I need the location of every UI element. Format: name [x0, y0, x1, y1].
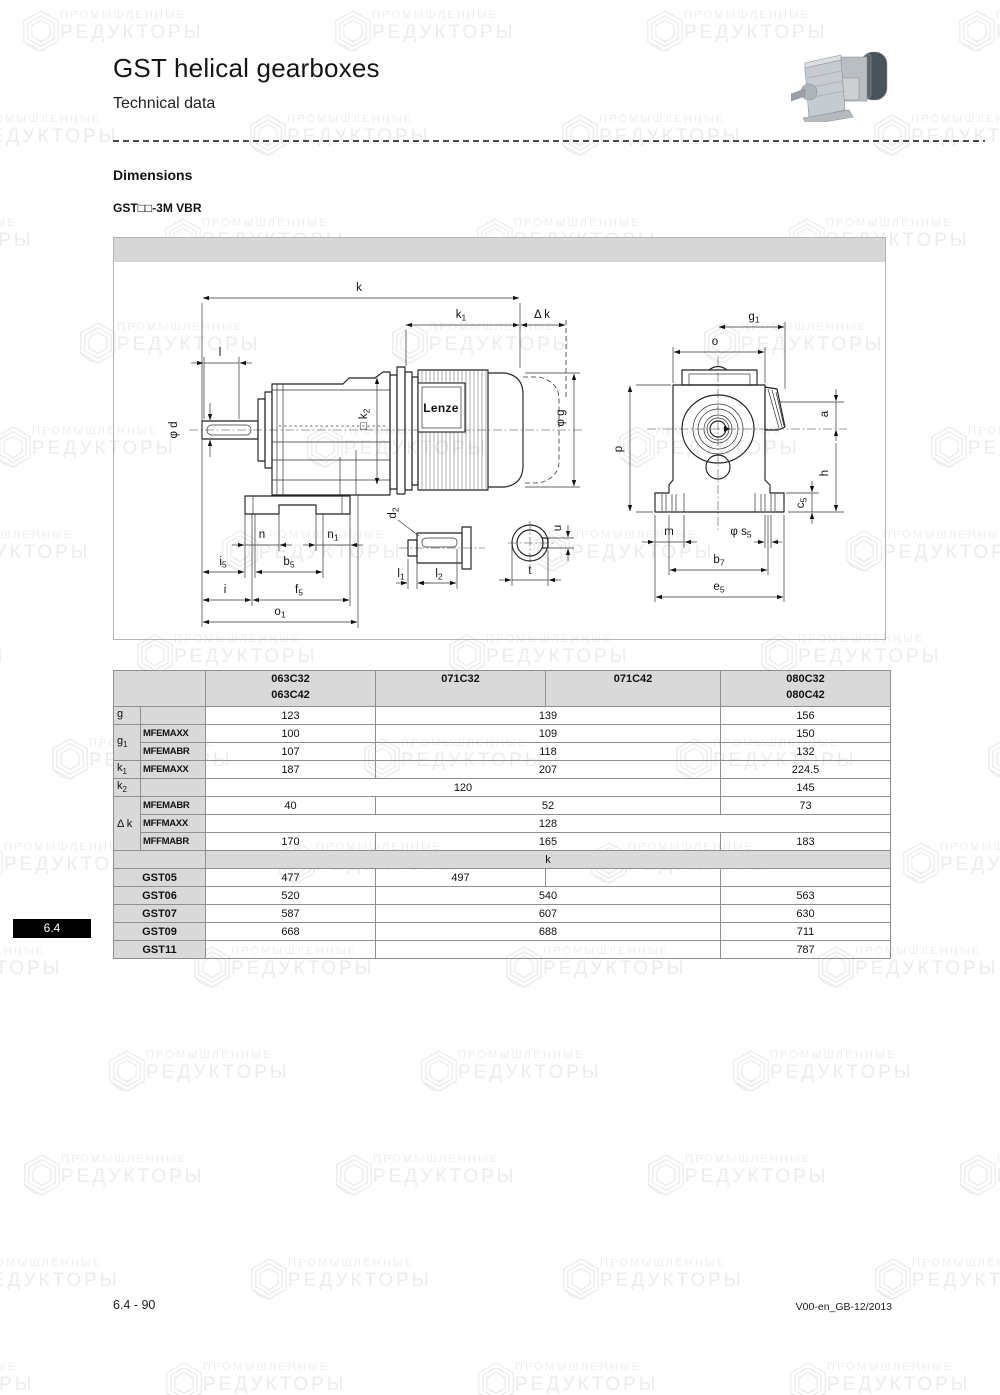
table-cell: 170: [206, 833, 376, 851]
table-cell: 587: [206, 905, 376, 923]
svg-text:k1: k1: [456, 309, 467, 323]
table-cell: 132: [721, 743, 891, 761]
row-label-gst06: GST06: [114, 887, 206, 905]
dimensions-table: 063C32 063C42 071C32 071C42 080C32 080C4…: [113, 670, 891, 959]
svg-text:p: p: [613, 446, 625, 452]
svg-text:n: n: [259, 529, 265, 541]
svg-text:l: l: [219, 347, 222, 359]
table-cell: 118: [376, 743, 721, 761]
foot-bolt-holes: [662, 494, 775, 511]
table-cell: 120: [206, 779, 721, 797]
page-subtitle: Technical data: [113, 95, 215, 113]
k-section-header: k: [206, 851, 891, 869]
table-cell: 520: [206, 887, 376, 905]
row-label-g1: g1: [114, 725, 141, 761]
table-cell: 207: [376, 761, 721, 779]
table-cell: [546, 869, 721, 887]
table-cell: 150: [721, 725, 891, 743]
sub-label: MFEMAXX: [141, 761, 206, 779]
front-view: [647, 357, 847, 530]
row-gst09: GST09 668 688 711: [114, 923, 891, 941]
chapter-tab: 6.4: [13, 919, 91, 938]
svg-text:□ k2: □ k2: [358, 408, 372, 429]
row-k2: k2 120 145: [114, 779, 891, 797]
svg-text:l2: l2: [435, 568, 443, 582]
table-cell: 52: [376, 797, 721, 815]
svg-text:o1: o1: [274, 606, 285, 620]
row-dk-mffmabr: MFFMABR 170 165 183: [114, 833, 891, 851]
row-gst11: GST11 787: [114, 941, 891, 959]
row-label-k2: k2: [114, 779, 141, 797]
row-label-dk: Δ k: [114, 797, 141, 851]
footer-page-number: 6.4 - 90: [113, 1298, 155, 1312]
sub-label: MFEMABR: [141, 743, 206, 761]
table-cell: 156: [721, 707, 891, 725]
table-cell: 563: [721, 887, 891, 905]
table-cell: [141, 707, 206, 725]
table-cell: 540: [376, 887, 721, 905]
row-k1-mfemaxx: k1 MFEMAXX 187 207 224.5: [114, 761, 891, 779]
table-cell: [376, 941, 721, 959]
svg-text:c5: c5: [795, 497, 809, 508]
svg-text:k: k: [356, 282, 362, 294]
row-k-header: k: [114, 851, 891, 869]
table-cell: 183: [721, 833, 891, 851]
table-cell: 630: [721, 905, 891, 923]
row-g: g 123 139 156: [114, 707, 891, 725]
table-cell: 497: [376, 869, 546, 887]
row-label-gst07: GST07: [114, 905, 206, 923]
product-photo: [791, 44, 893, 122]
row-label-gst05: GST05: [114, 869, 206, 887]
table-cell: 128: [206, 815, 891, 833]
row-gst05: GST05 477 497: [114, 869, 891, 887]
front-view-dimensions: g1 o p a h c5: [613, 311, 844, 602]
page: { "page": { "title": "GST helical gearbo…: [0, 0, 1000, 1395]
svg-text:h: h: [819, 470, 831, 476]
section-heading: Dimensions: [113, 167, 192, 183]
row-g1-mfemaxx: g1 MFEMAXX 100 109 150: [114, 725, 891, 743]
side-view-dimensions: k k1 Δ k l φ d □ k2 φ g: [168, 282, 580, 628]
table-cell: [206, 941, 376, 959]
table-cell: 109: [376, 725, 721, 743]
col-header-071c42: 071C42: [546, 671, 721, 707]
svg-text:t: t: [528, 565, 532, 577]
svg-text:Δ k: Δ k: [534, 309, 550, 321]
svg-text:n1: n1: [327, 529, 338, 543]
table-corner-cell: [114, 671, 206, 707]
table-cell: 100: [206, 725, 376, 743]
row-g1-mfemabr: MFEMABR 107 118 132: [114, 743, 891, 761]
lenze-logo: Lenze: [423, 401, 459, 415]
table-cell: 139: [376, 707, 721, 725]
row-label-gst11: GST11: [114, 941, 206, 959]
table-cell: 123: [206, 707, 376, 725]
svg-text:i: i: [224, 584, 227, 596]
table-cell: 187: [206, 761, 376, 779]
table-cell: [141, 779, 206, 797]
row-gst06: GST06 520 540 563: [114, 887, 891, 905]
page-content: GST helical gearboxes Technical data Dim…: [0, 0, 1000, 1395]
row-label-gst09: GST09: [114, 923, 206, 941]
sub-label: MFFMABR: [141, 833, 206, 851]
table-cell: 688: [376, 923, 721, 941]
sub-label: MFEMAXX: [141, 725, 206, 743]
row-dk-mfemabr: Δ k MFEMABR 40 52 73: [114, 797, 891, 815]
footer-version: V00-en_GB-12/2013: [592, 1301, 892, 1313]
sub-label: MFEMABR: [141, 797, 206, 815]
table-cell: 668: [206, 923, 376, 941]
bushing-detail: d2 l1 l2: [387, 507, 485, 589]
row-dk-mffmaxx: MFFMAXX 128: [114, 815, 891, 833]
svg-text:d2: d2: [387, 507, 401, 518]
svg-text:φ g: φ g: [555, 409, 567, 426]
svg-text:o: o: [712, 336, 718, 348]
output-shaft: [791, 89, 805, 101]
shaft-section-detail: u t: [499, 521, 574, 586]
svg-text:φ d: φ d: [168, 421, 180, 438]
dashed-separator: [113, 140, 985, 142]
page-title: GST helical gearboxes: [113, 53, 380, 84]
svg-text:φ s5: φ s5: [730, 526, 751, 540]
table-cell: 107: [206, 743, 376, 761]
svg-text:f5: f5: [295, 584, 303, 598]
table-cell: [114, 851, 206, 869]
svg-text:i5: i5: [219, 556, 227, 570]
svg-text:e5: e5: [713, 581, 724, 595]
table-cell: 40: [206, 797, 376, 815]
svg-text:b7: b7: [713, 554, 724, 568]
table-cell: 711: [721, 923, 891, 941]
col-header-071c32: 071C32: [376, 671, 546, 707]
table-cell: 787: [721, 941, 891, 959]
row-label-g: g: [114, 707, 141, 725]
variant-label: GST□□-3M VBR: [113, 201, 202, 215]
row-label-k1: k1: [114, 761, 141, 779]
table-cell: 477: [206, 869, 376, 887]
sub-label: MFFMAXX: [141, 815, 206, 833]
side-view: Lenze: [189, 367, 583, 514]
svg-text:l1: l1: [397, 568, 405, 582]
table-header-row: 063C32 063C42 071C32 071C42 080C32 080C4…: [114, 671, 891, 707]
svg-text:u: u: [552, 525, 564, 531]
table-cell: 145: [721, 779, 891, 797]
table-cell: 224.5: [721, 761, 891, 779]
table-cell: [721, 869, 891, 887]
table-cell: 165: [376, 833, 721, 851]
col-header-063: 063C32 063C42: [206, 671, 376, 707]
col-header-080: 080C32 080C42: [721, 671, 891, 707]
dimension-drawing: Lenze k k1 Δ k l φ d □ k: [113, 237, 886, 640]
svg-text:a: a: [819, 410, 831, 417]
table-cell: 73: [721, 797, 891, 815]
svg-text:g1: g1: [748, 311, 759, 325]
drawing-header-strip: [114, 238, 885, 262]
row-gst07: GST07 587 607 630: [114, 905, 891, 923]
table-cell: 607: [376, 905, 721, 923]
svg-text:b5: b5: [283, 556, 294, 570]
